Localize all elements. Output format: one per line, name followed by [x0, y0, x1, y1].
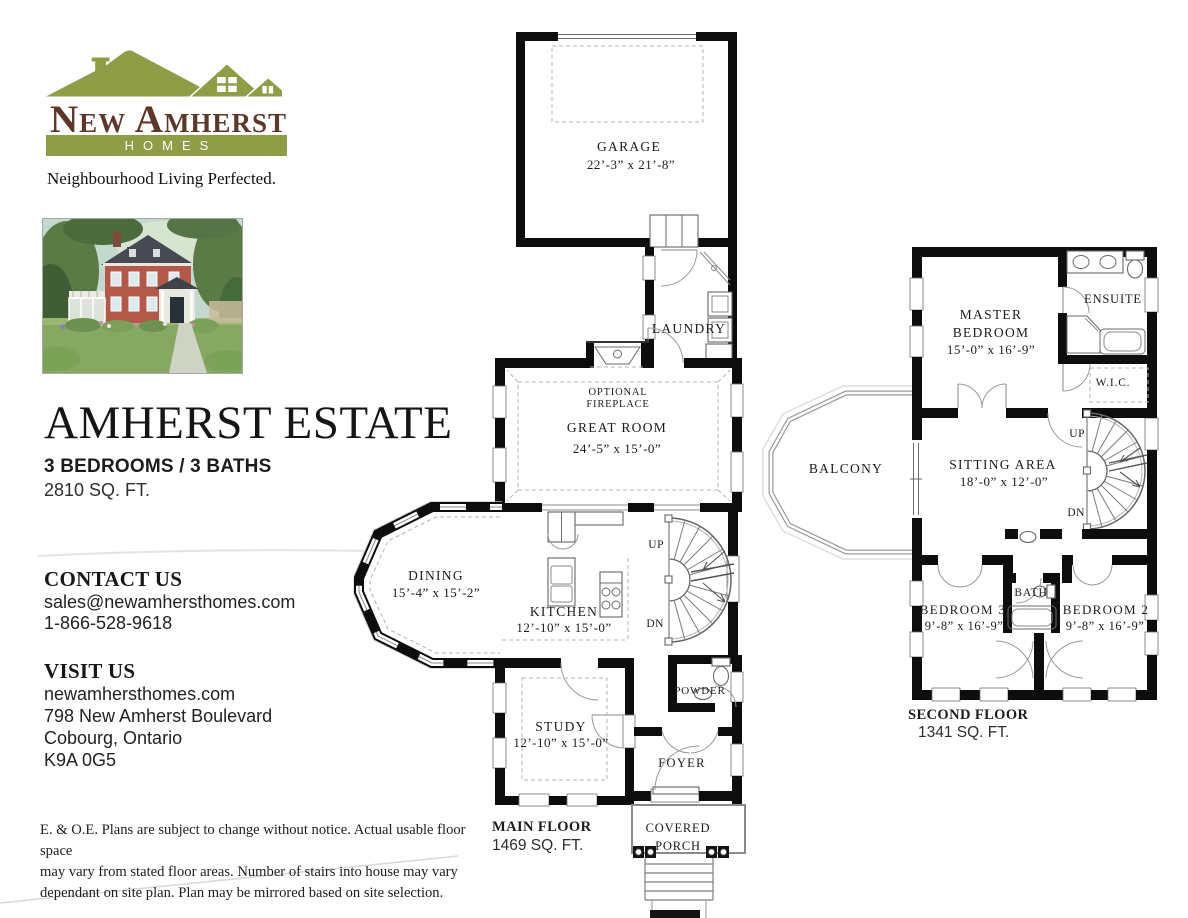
- foyer-label: FOYER: [658, 756, 705, 770]
- bath-tub-icon: [1008, 606, 1056, 629]
- walk-in-closet: W.I.C.: [1063, 364, 1148, 402]
- study-label: STUDY: [535, 719, 587, 734]
- powder-toilet-icon: [712, 658, 730, 686]
- ensuite-vanity: [1067, 251, 1123, 273]
- great-room-label: GREAT ROOM: [567, 420, 667, 435]
- main-floor-plan: GARAGE 22’-3” x 21’-8”: [350, 20, 770, 918]
- second-floor-label: SECOND FLOOR: [908, 707, 1029, 723]
- study-dims: 12’-10” x 15’-0”: [513, 735, 608, 750]
- stairs-dn-label: DN: [646, 618, 664, 630]
- stairs2-dn-label: DN: [1067, 507, 1085, 519]
- brand-homes-label: HOMES: [116, 138, 218, 153]
- house-illustration: [42, 218, 243, 374]
- fridge-icon: [548, 512, 575, 542]
- powder-label: POWDER: [674, 685, 725, 697]
- brand-homes-bar: HOMES: [46, 135, 287, 156]
- porch-walkway: [650, 900, 706, 918]
- bedrooms-bath: BATH BEDROOM 3 9’-8” x 16’-9” BEDROOM 2 …: [912, 529, 1157, 700]
- plan-specs: 3 BEDROOMS / 3 BATHS: [44, 456, 271, 478]
- master-label2: BEDROOM: [953, 325, 1030, 340]
- kitchen-label: KITCHEN: [530, 604, 598, 619]
- closet-doors-bed3: [996, 641, 1033, 678]
- kitchen-dims: 12’-10” x 15’-0”: [516, 620, 611, 635]
- wic-door-arc: [1063, 364, 1090, 391]
- garage-room: GARAGE 22’-3” x 21’-8”: [516, 32, 737, 247]
- study-room: STUDY 12’-10” x 15’-0”: [493, 658, 635, 806]
- closet-doors-bed2: [1046, 641, 1083, 678]
- cased-opening: [542, 505, 628, 510]
- main-floor-caption: MAIN FLOOR 1469 SQ. FT.: [492, 819, 592, 854]
- visit-address: 798 New Amherst Boulevard: [44, 706, 272, 728]
- main-floor-label: MAIN FLOOR: [492, 819, 592, 835]
- linen-sink: [1005, 529, 1062, 543]
- sitting-area: SITTING AREA 18’-0” x 12’-0”: [949, 457, 1056, 489]
- stairs2-up-label: UP: [1069, 428, 1085, 440]
- fireplace-icon: [586, 342, 649, 368]
- optional-fireplace-label1: OPTIONAL: [589, 387, 648, 398]
- brand-logo-roofline: [46, 48, 282, 98]
- bedroom2-dims: 9’-8” x 16’-9”: [1066, 619, 1145, 633]
- flyer-page: New Amherst HOMES Neighbourhood Living P…: [0, 0, 1188, 918]
- bedroom3-label: BEDROOM 3: [920, 602, 1006, 617]
- bedroom3-dims: 9’-8” x 16’-9”: [925, 619, 1004, 633]
- kitchen-island: [548, 558, 575, 606]
- powder-foyer: POWDER FOYER: [634, 655, 743, 805]
- laundry-door-arc: [661, 250, 697, 286]
- dining-dims: 15’-4” x 15’-2”: [392, 585, 480, 600]
- porch-label1: COVERED: [646, 821, 711, 835]
- foyer-french-door-right: [691, 731, 718, 753]
- covered-porch: COVERED PORCH: [632, 805, 745, 918]
- ensuite-shower-icon: [1067, 316, 1100, 353]
- second-floor-area: 1341 SQ. FT.: [918, 724, 1009, 741]
- stairs-up-label: UP: [648, 539, 664, 551]
- stairs-main: UP DN: [646, 512, 739, 658]
- second-floor-plan: MASTER BEDROOM 15’-0” x 16’-9”: [755, 235, 1165, 745]
- ensuite-label: ENSUITE: [1084, 292, 1142, 306]
- dining-bay: DINING 15’-4” x 15’-2”: [354, 502, 502, 668]
- ensuite: ENSUITE: [1058, 247, 1157, 364]
- wic-label: W.I.C.: [1096, 377, 1131, 389]
- garage-dims: 22’-3” x 21’-8”: [587, 157, 675, 172]
- garage-entry-steps: [650, 215, 698, 247]
- foyer-french-door-left: [662, 731, 690, 753]
- great-room-dims: 24’-5” x 15’-0”: [573, 441, 661, 456]
- bath-room: BATH: [1003, 573, 1060, 633]
- master-label1: MASTER: [960, 307, 1023, 322]
- laundry-room: LAUNDRY: [643, 242, 737, 368]
- visit-website[interactable]: newamhersthomes.com: [44, 684, 235, 706]
- dining-label: DINING: [408, 568, 464, 583]
- sitting-dims: 18’-0” x 12’-0”: [960, 474, 1048, 489]
- range-icon: [600, 572, 622, 617]
- balcony-label: BALCONY: [809, 461, 883, 476]
- ensuite-tub-icon: [1100, 329, 1145, 354]
- balcony: BALCONY: [763, 386, 912, 559]
- balcony-door: [909, 440, 923, 518]
- master-double-doors: [958, 384, 1006, 408]
- kitchen: KITCHEN 12’-10” x 15’-0”: [502, 512, 628, 640]
- bath-label: BATH: [1014, 587, 1047, 599]
- contact-email[interactable]: sales@newamhersthomes.com: [44, 592, 295, 614]
- main-floor-area: 1469 SQ. FT.: [492, 837, 583, 854]
- ensuite-toilet-icon: [1126, 251, 1144, 278]
- visit-city: Cobourg, Ontario: [44, 728, 182, 750]
- sitting-label: SITTING AREA: [949, 457, 1056, 472]
- visit-postal: K9A 0G5: [44, 750, 116, 772]
- front-door: [651, 746, 699, 802]
- cased-opening: [654, 505, 700, 510]
- second-floor-caption: SECOND FLOOR 1341 SQ. FT.: [908, 707, 1029, 741]
- master-dims: 15’-0” x 16’-9”: [947, 342, 1035, 357]
- porch-steps: [645, 858, 713, 900]
- laundry-closet: [700, 252, 730, 285]
- brand-tagline: Neighbourhood Living Perfected.: [47, 169, 276, 189]
- optional-fireplace-label2: FIREPLACE: [586, 399, 649, 410]
- visit-heading: VISIT US: [44, 659, 135, 684]
- stairs-second: UP DN: [1048, 410, 1157, 539]
- laundry-label: LAUNDRY: [652, 321, 726, 336]
- plan-area: 2810 SQ. FT.: [44, 480, 150, 501]
- brand-name: New Amherst: [46, 100, 291, 139]
- porch-label2: PORCH: [655, 839, 701, 853]
- kitchen-counter: [575, 512, 623, 525]
- bedroom2-label: BEDROOM 2: [1063, 602, 1149, 617]
- garage-door: [558, 32, 696, 41]
- contact-heading: CONTACT US: [44, 567, 182, 592]
- contact-phone: 1-866-528-9618: [44, 613, 172, 635]
- garage-label: GARAGE: [597, 139, 661, 154]
